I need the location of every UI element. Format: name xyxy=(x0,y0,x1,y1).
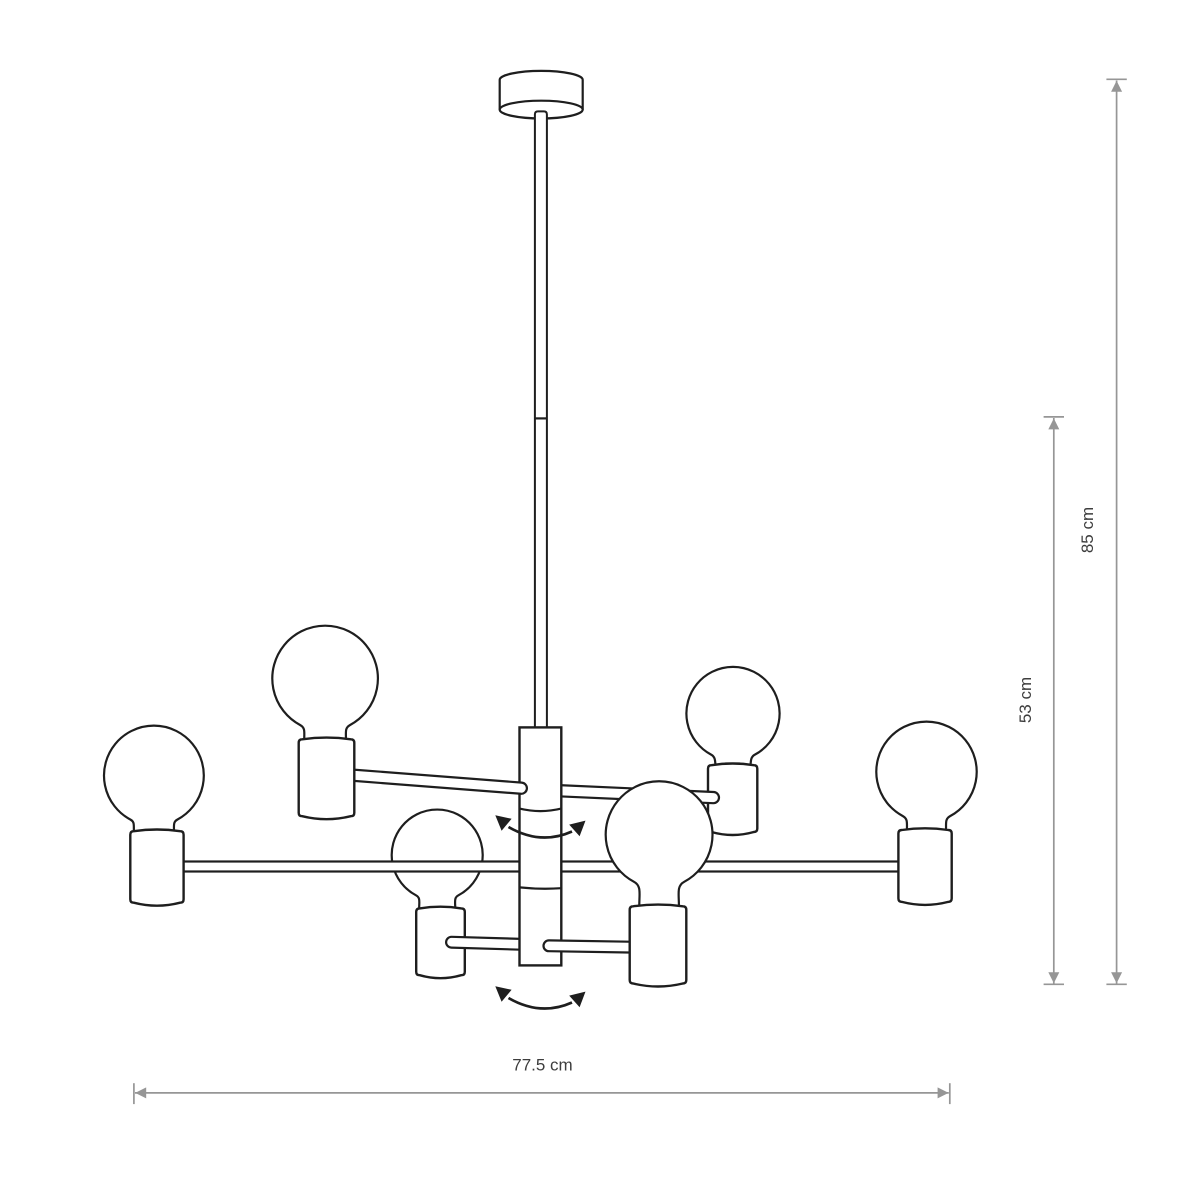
svg-text:77.5 cm: 77.5 cm xyxy=(512,1056,572,1075)
svg-text:85 cm: 85 cm xyxy=(1078,507,1097,553)
svg-text:53 cm: 53 cm xyxy=(1016,677,1035,723)
